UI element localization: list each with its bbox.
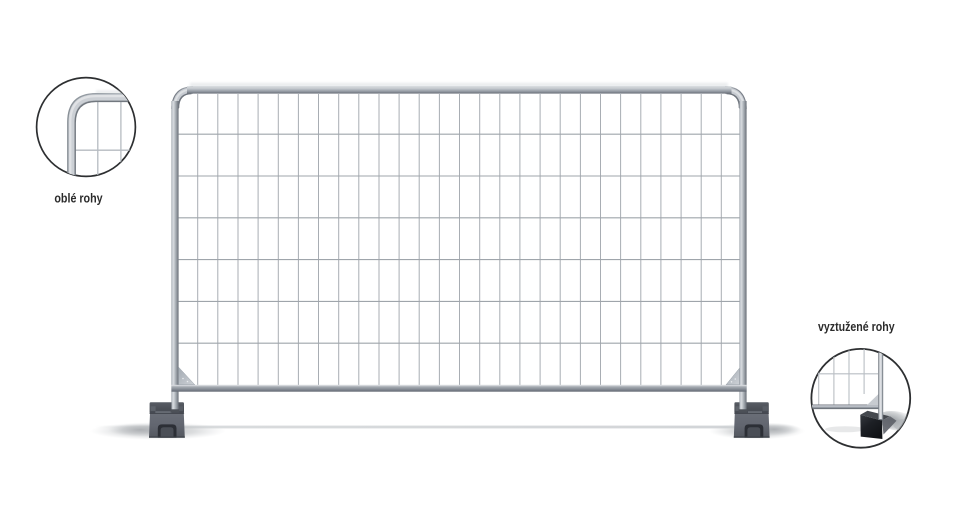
svg-text:vyztužené rohy: vyztužené rohy: [818, 319, 895, 334]
svg-text:oblé rohy: oblé rohy: [54, 190, 103, 205]
